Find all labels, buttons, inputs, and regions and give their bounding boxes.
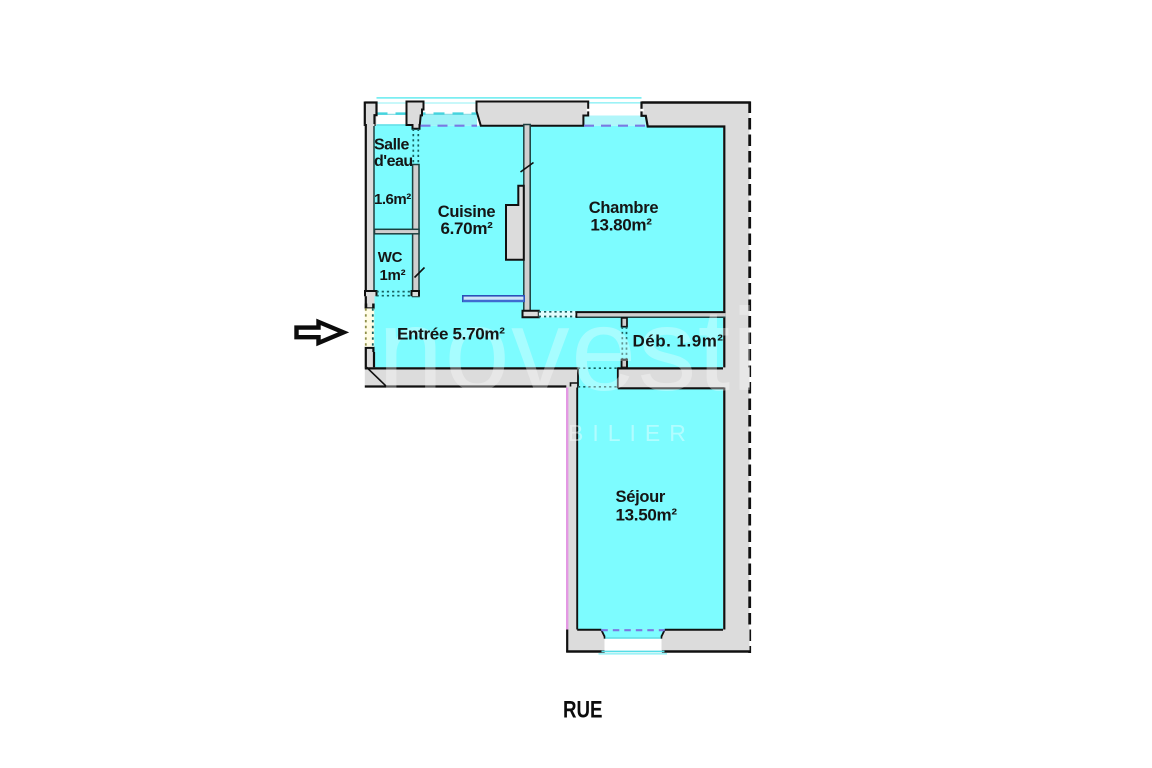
svg-text:13.50m²: 13.50m² [616, 505, 678, 524]
svg-text:Séjour: Séjour [616, 488, 666, 506]
svg-text:Entrée 5.70m²: Entrée 5.70m² [397, 325, 505, 344]
svg-text:1m²: 1m² [380, 267, 406, 284]
svg-text:1.6m²: 1.6m² [374, 191, 411, 208]
svg-text:Salle: Salle [374, 137, 409, 154]
svg-text:d'eau: d'eau [374, 153, 413, 170]
svg-text:BILIER: BILIER [568, 420, 695, 446]
svg-text:WC: WC [378, 249, 403, 266]
svg-text:Chambre: Chambre [589, 199, 659, 217]
svg-text:6.70m²: 6.70m² [440, 219, 493, 238]
svg-text:RUE: RUE [563, 696, 603, 723]
svg-text:13.80m²: 13.80m² [590, 215, 652, 234]
svg-text:Déb. 1.9m²: Déb. 1.9m² [633, 332, 724, 351]
